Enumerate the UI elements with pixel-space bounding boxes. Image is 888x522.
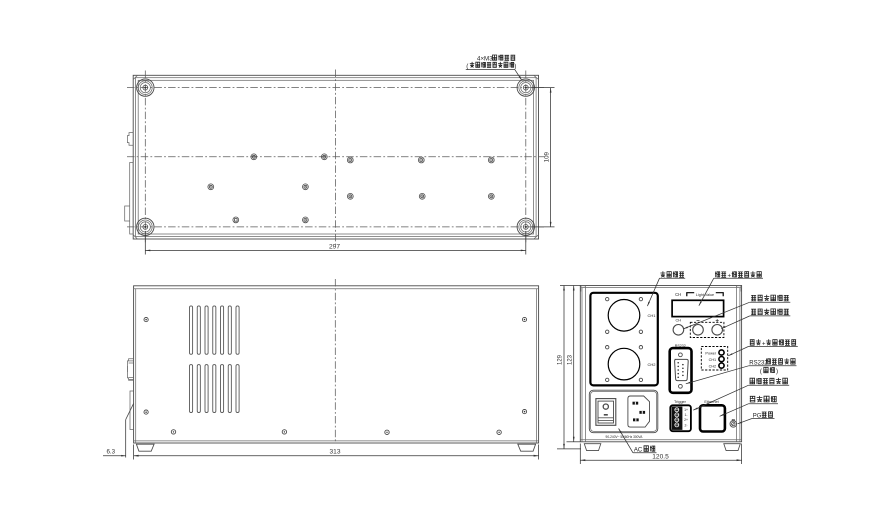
svg-text:2+: 2+ bbox=[684, 418, 688, 422]
svg-text:120.5: 120.5 bbox=[652, 453, 669, 460]
svg-text:1+: 1+ bbox=[684, 408, 688, 412]
svg-text:CH1: CH1 bbox=[647, 313, 656, 318]
svg-text:CH2: CH2 bbox=[709, 364, 717, 368]
svg-text:Ethernet: Ethernet bbox=[704, 400, 719, 404]
svg-text:297: 297 bbox=[329, 243, 340, 250]
svg-text:313: 313 bbox=[329, 449, 340, 456]
svg-text:CH: CH bbox=[675, 319, 681, 323]
svg-text:6.3: 6.3 bbox=[106, 449, 115, 456]
svg-text:Trigger: Trigger bbox=[674, 400, 687, 404]
svg-text:109: 109 bbox=[543, 151, 550, 162]
svg-text:): ) bbox=[776, 368, 778, 375]
svg-text:1-: 1- bbox=[684, 413, 687, 417]
svg-text:2-: 2- bbox=[684, 423, 687, 427]
svg-text:Power: Power bbox=[705, 351, 716, 355]
svg-text:4×M3: 4×M3 bbox=[477, 56, 493, 63]
svg-text:): ) bbox=[514, 63, 516, 70]
svg-text:CH2: CH2 bbox=[647, 362, 656, 367]
svg-text:CH: CH bbox=[675, 292, 681, 297]
svg-text:CH1: CH1 bbox=[709, 358, 717, 362]
svg-text:129: 129 bbox=[558, 354, 564, 365]
svg-text:123: 123 bbox=[568, 354, 574, 365]
